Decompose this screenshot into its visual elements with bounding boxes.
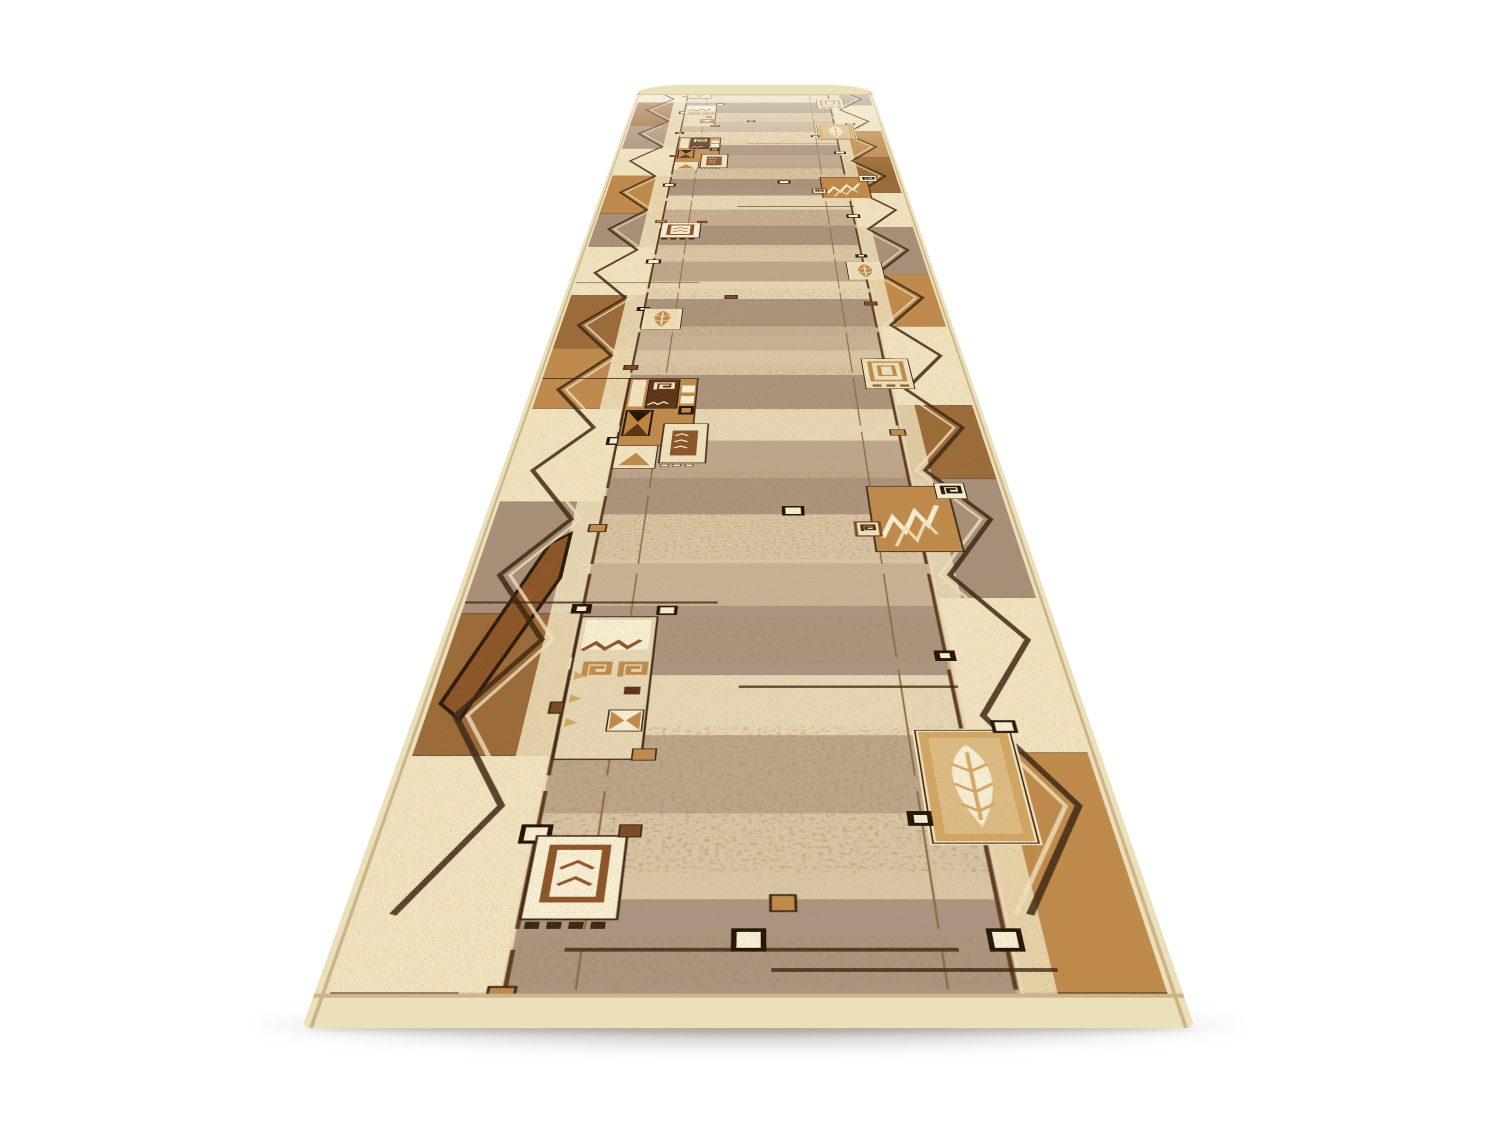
runner-rug xyxy=(302,85,1195,1028)
fine-grain-texture xyxy=(329,87,1168,995)
top-binding xyxy=(637,85,873,94)
rug-pattern xyxy=(302,85,1195,1028)
bottom-binding-line xyxy=(313,994,1185,998)
bottom-binding xyxy=(302,994,1195,1028)
product-photo xyxy=(0,0,1500,1125)
perspective-scene xyxy=(0,0,1500,1125)
roll-highlight xyxy=(609,95,899,171)
